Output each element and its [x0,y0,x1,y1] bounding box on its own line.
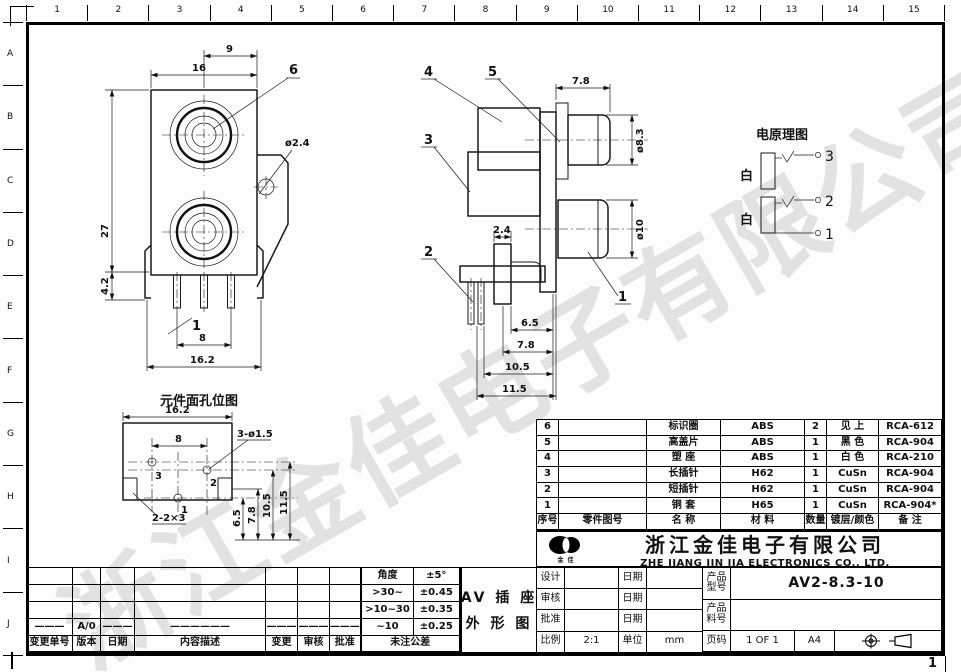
wire-label: 白 [740,212,753,228]
date-label: 日期 [619,568,647,589]
product-model-value: AV2-8.3-10 [731,568,943,600]
rev-empty [101,585,135,602]
dim-label: 8 [199,333,206,344]
bom-plating: CuSn [827,483,879,499]
rev-empty [135,568,266,585]
bom-qty: 1 [805,451,827,467]
front-view: 16 9 27 4.2 1 8 16.2 6 ø2. [100,44,310,371]
rev-version: A/0 [73,619,101,636]
rev-empty [135,602,266,619]
dim-label: 6.5 [232,509,243,527]
dim-label: 11.5 [502,384,527,395]
sheet-page-number: 1 [928,656,946,672]
rev-empty [298,585,330,602]
drawing-name-line1: AV 插 座 [461,587,537,607]
rev-empty [73,585,101,602]
hole-number: 2 [210,478,217,489]
rev-empty [73,568,101,585]
leader-label: 4 [424,65,433,80]
bom-name: 塑 座 [647,451,721,467]
rev-empty [330,568,361,585]
dim-label: 8 [175,434,182,445]
bom-material: ABS [721,436,805,452]
bom-qty: 1 [805,483,827,499]
rev-approve: ——— [330,619,361,636]
dim-label: ø8.3 [635,128,646,153]
product-part-no-value [731,600,943,632]
bom-name: 高盖片 [647,436,721,452]
bom-no: 1 [537,498,559,514]
bom-header-no: 序号 [537,514,559,530]
bom-header-material: 材 料 [721,514,805,530]
tol-value: ±0.35 [414,602,460,619]
bom-part-no [559,436,647,452]
leader-label: 1 [618,290,627,305]
bom-name: 铜 套 [647,498,721,514]
bom-remark: RCA-210 [879,451,942,467]
dim-label: 1 [192,319,201,334]
bom-no: 3 [537,467,559,483]
dim-label: 7.8 [247,506,258,524]
company-name-cn: 浙江金佳电子有限公司 [645,529,885,558]
dim-label: 2-2×3 [152,513,185,524]
bom-material: H65 [721,498,805,514]
bom-header-part-no: 零件图号 [559,514,647,530]
rev-empty [330,602,361,619]
rev-empty [298,602,330,619]
bom-material: H62 [721,467,805,483]
rev-empty [266,585,298,602]
bom-remark: RCA-904 [879,467,942,483]
drawing-name-line2: 外 形 图 [466,613,533,633]
title-block-signoff: 设计 日期 审核 日期 批准 日期 比例 2:1 单位 mm [537,568,703,653]
bom-part-no [559,451,647,467]
review-value [565,589,619,610]
terminal-number: 2 [825,194,834,210]
review-label: 审核 [537,589,565,610]
dim-label: 16.2 [165,405,190,416]
dim-label: 7.8 [572,76,590,87]
rev-header: 变更 [266,636,298,652]
dim-label: ø10 [635,219,646,240]
dim-label: 10.5 [262,493,273,518]
bom-plating: 白 色 [827,451,879,467]
unit-value: mm [647,632,703,653]
bom-part-no [559,498,647,514]
dim-label: 11.5 [279,490,290,515]
dim-label: ø2.4 [285,138,310,149]
rev-empty [135,585,266,602]
rev-empty [330,585,361,602]
bom-name: 长插针 [647,467,721,483]
dim-label: 3-ø1.5 [237,429,273,440]
rev-empty [27,585,73,602]
dim-label: 10.5 [505,362,530,373]
date-label: 日期 [619,589,647,610]
tol-range: ~10 [362,619,414,636]
hole-layout-view: 元件面孔位图 3 2 1 16.2 8 3-ø1.5 [123,393,300,540]
date-value [647,610,703,631]
wire-label: 白 [740,168,753,184]
bom-table: 6 标识圈 ABS 2 见 上 RCA-612 5 高盖片 ABS 1 黑 色 … [536,419,942,531]
bom-material: H62 [721,483,805,499]
bom-no: 2 [537,483,559,499]
schematic-title: 电原理图 [756,127,808,143]
bom-no: 4 [537,451,559,467]
bom-remark: RCA-612 [879,420,942,436]
bom-remark: RCA-904 [879,483,942,499]
leader-label: 3 [424,133,433,148]
rev-header: 变更单号 [27,636,73,652]
rev-header: 日期 [101,636,135,652]
bom-remark: RCA-904 [879,436,942,452]
side-view: 4 5 3 2 1 7.8 ø8.3 [421,65,648,400]
bom-part-no [559,467,647,483]
drawing-sheet: 浙江金佳电子有限公司 1 2 3 4 5 6 7 8 9 10 11 12 13… [0,0,961,672]
leader-label: 2 [424,245,433,260]
bom-qty: 1 [805,467,827,483]
approve-label: 批准 [537,610,565,631]
bom-part-no [559,420,647,436]
bom-name: 短插针 [647,483,721,499]
rev-empty [101,602,135,619]
tol-range: >30~ [362,585,414,602]
tol-value: ±0.25 [414,619,460,636]
page-label: 页码 [703,631,731,652]
bom-remark: RCA-904* [879,498,942,514]
rev-header: 审核 [298,636,330,652]
drawing-name-box: AV 插 座 外 形 图 [461,567,536,653]
dim-label: 4.2 [100,277,111,295]
bom-no: 5 [537,436,559,452]
rev-empty [266,568,298,585]
design-value [565,568,619,589]
bom-part-no [559,483,647,499]
bom-no: 6 [537,420,559,436]
rev-change: ——— [266,619,298,636]
rev-order-no: ——— [27,619,73,636]
bom-plating: CuSn [827,467,879,483]
dim-label: 6.5 [521,318,539,329]
terminal-number: 1 [825,227,834,243]
leader-label: 6 [289,63,298,78]
bom-header-name: 名 称 [647,514,721,530]
bom-header-plating: 镀层/颜色 [827,514,879,530]
logo-caption: 金 佳 [557,555,574,564]
dim-label: 27 [100,224,111,238]
bom-plating: 见 上 [827,420,879,436]
date-value [647,589,703,610]
date-label: 日期 [619,610,647,631]
schematic: 电原理图 白 白 3 2 1 [740,127,834,243]
tol-range: >10~30 [362,602,414,619]
company-band: 金 佳 浙江金佳电子有限公司 ZHE JIANG JIN JIA ELECTRO… [536,531,942,567]
rev-empty [27,602,73,619]
bom-plating: CuSn [827,498,879,514]
product-part-no-label: 产品料号 [703,600,731,632]
bom-qty: 2 [805,420,827,436]
rev-empty [101,568,135,585]
title-block: 设计 日期 审核 日期 批准 日期 比例 2:1 单位 mm 产品型号 AV2-… [536,567,942,653]
rev-empty [298,568,330,585]
rev-header: 批准 [330,636,361,652]
scale-label: 比例 [537,632,565,653]
rev-empty [27,568,73,585]
dim-label: 9 [226,44,233,55]
revision-table: ——— A/0 ——— —————— ——— ——— ——— 变更单号 版本 日… [26,567,361,653]
hole-number: 3 [155,471,162,482]
bom-name: 标识圈 [647,420,721,436]
projection-symbol-cell [835,631,943,652]
leader-label: 5 [488,65,497,80]
bom-header-remark: 备 注 [879,514,942,530]
rev-empty [266,602,298,619]
paper-size: A4 [795,631,835,652]
rev-header: 版本 [73,636,101,652]
scale-value: 2:1 [565,632,619,653]
unit-label: 单位 [619,632,647,653]
rev-description: —————— [135,619,266,636]
bom-material: ABS [721,451,805,467]
title-block-product: 产品型号 AV2-8.3-10 产品料号 页码 1 OF 1 A4 [703,568,943,653]
bom-material: ABS [721,420,805,436]
terminal-number: 3 [825,149,834,165]
dim-label: 7.8 [517,340,535,351]
rev-header: 内容描述 [135,636,266,652]
tol-range: 角度 [362,568,414,585]
tol-value: ±5° [414,568,460,585]
rev-date: ——— [101,619,135,636]
tol-value: ±0.45 [414,585,460,602]
dim-label: 16.2 [190,355,215,366]
design-label: 设计 [537,568,565,589]
projection-symbol-icon [849,633,929,649]
bom-qty: 1 [805,436,827,452]
bom-header-qty: 数量 [805,514,827,530]
logo-icon [547,535,585,555]
rev-empty [73,602,101,619]
company-logo: 金 佳 [543,535,589,564]
approve-value [565,610,619,631]
rev-review: ——— [298,619,330,636]
dim-label: 2.4 [493,225,511,236]
page-value: 1 OF 1 [731,631,795,652]
tolerance-table: 角度 ±5° >30~ ±0.45 >10~30 ±0.35 ~10 ±0.25… [361,567,461,653]
tolerance-footer: 未注公差 [362,636,460,652]
product-model-label: 产品型号 [703,568,731,600]
date-value [647,568,703,589]
bom-qty: 1 [805,498,827,514]
bom-plating: 黑 色 [827,436,879,452]
